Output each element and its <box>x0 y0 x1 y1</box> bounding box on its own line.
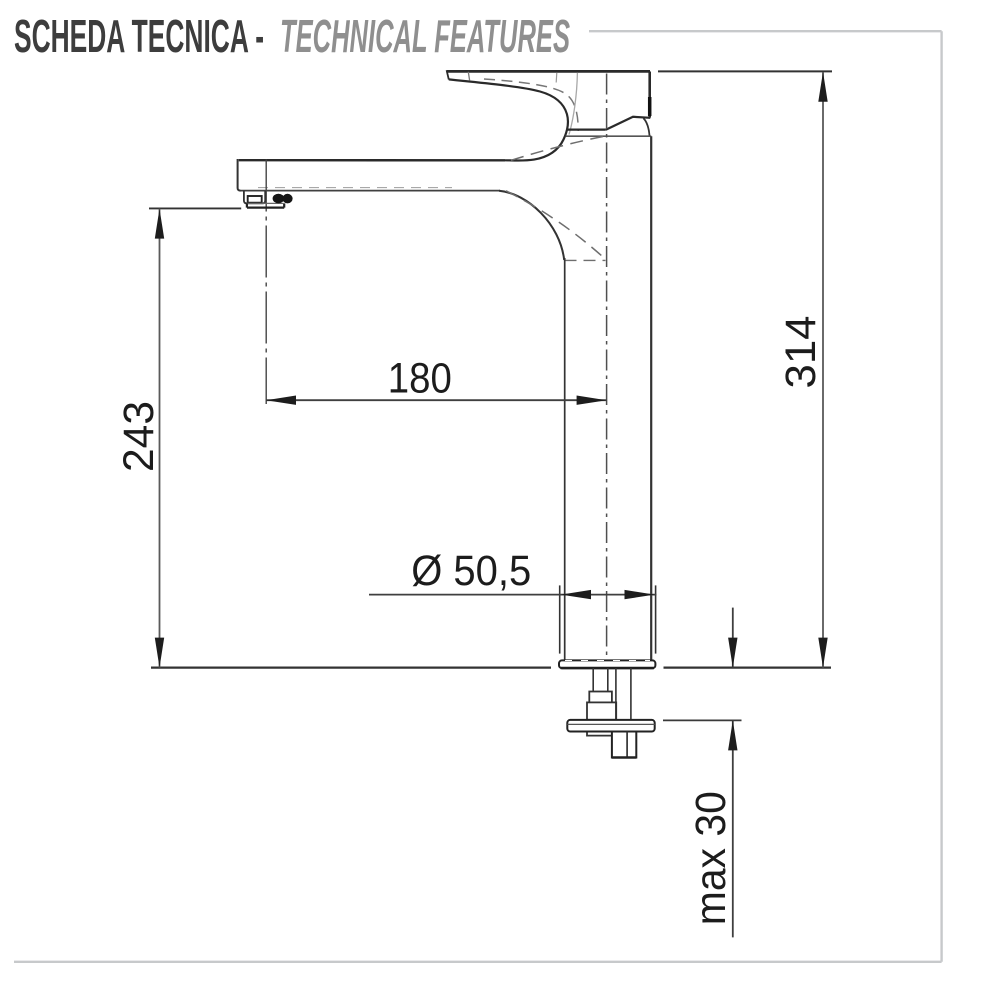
svg-text:314: 314 <box>777 316 825 389</box>
svg-text:180: 180 <box>388 355 452 403</box>
svg-text:Ø 50,5: Ø 50,5 <box>411 547 531 595</box>
svg-text:SCHEDA TECNICA -: SCHEDA TECNICA - <box>14 10 264 62</box>
svg-text:max 30: max 30 <box>687 791 735 925</box>
svg-text:TECHNICAL FEATURES: TECHNICAL FEATURES <box>280 10 570 62</box>
svg-text:243: 243 <box>115 401 163 472</box>
